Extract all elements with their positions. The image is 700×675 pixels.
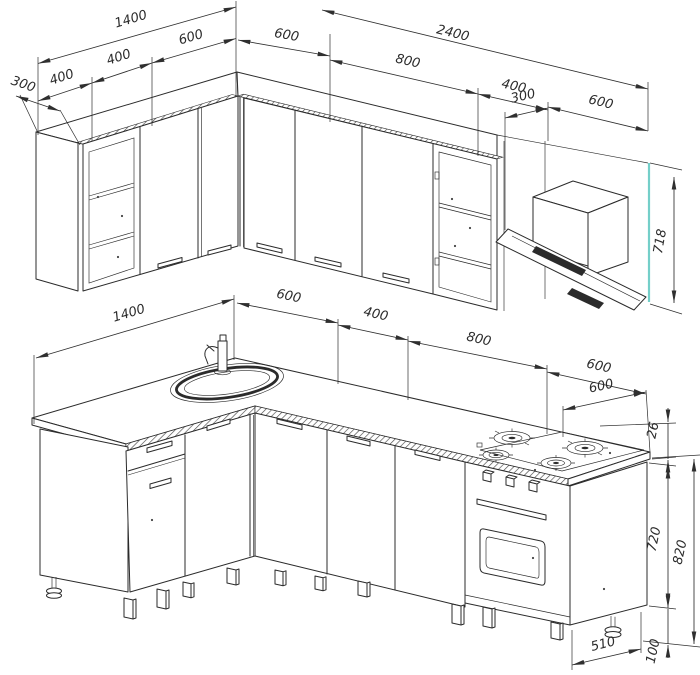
- dim-label-lower-left-total: 1400: [111, 302, 147, 326]
- dim-label-upper-left-400-mid: 400: [105, 47, 133, 69]
- base-cabinets-group: [32, 335, 650, 640]
- upper-left-side-panel: [36, 132, 78, 291]
- dim-label-upper-left-depth: 300: [9, 74, 37, 96]
- dim-label-hob-depth-600: 600: [588, 377, 615, 397]
- dim-label-hood-width-600: 600: [587, 92, 615, 112]
- upper-glass-cabinet-left: [83, 127, 140, 292]
- dim-label-lower-800: 800: [465, 330, 493, 350]
- wall-top-edge: [497, 135, 648, 163]
- dim-label-upper-corner-600: 600: [273, 26, 300, 45]
- oven-cabinet-side: [570, 462, 647, 625]
- oven: [465, 462, 647, 625]
- adjustable-foot: [47, 577, 62, 598]
- dim-label-hob-width-600: 600: [585, 357, 613, 377]
- dim-label-upper-800: 800: [394, 51, 422, 71]
- drawing-canvas: 1400 600 400 400 300 600 2400 800 400 30…: [0, 0, 700, 675]
- dim-label-carcass-720: 720: [645, 526, 665, 553]
- dim-label-height-718: 718: [651, 228, 670, 255]
- upper-left-doors: [140, 96, 238, 275]
- dim-label-upper-left-600: 600: [177, 27, 205, 48]
- dim-label-upper-left-total: 1400: [113, 8, 149, 32]
- dim-label-lower-corner-600: 600: [275, 287, 302, 307]
- dim-label-total-820: 820: [671, 539, 691, 566]
- dim-label-upper-left-400-end: 400: [48, 67, 76, 89]
- dim-label-countertop-26: 26: [645, 421, 663, 440]
- upper-glass-cabinet-right: [433, 144, 497, 311]
- base-left-side-panel: [40, 429, 128, 592]
- dim-label-oven-depth-510: 510: [589, 634, 617, 655]
- dim-label-lower-400: 400: [362, 305, 389, 325]
- upper-cabinets-group: [36, 72, 649, 311]
- kitchen-technical-drawing: 1400 600 400 400 300 600 2400 800 400 30…: [0, 0, 700, 675]
